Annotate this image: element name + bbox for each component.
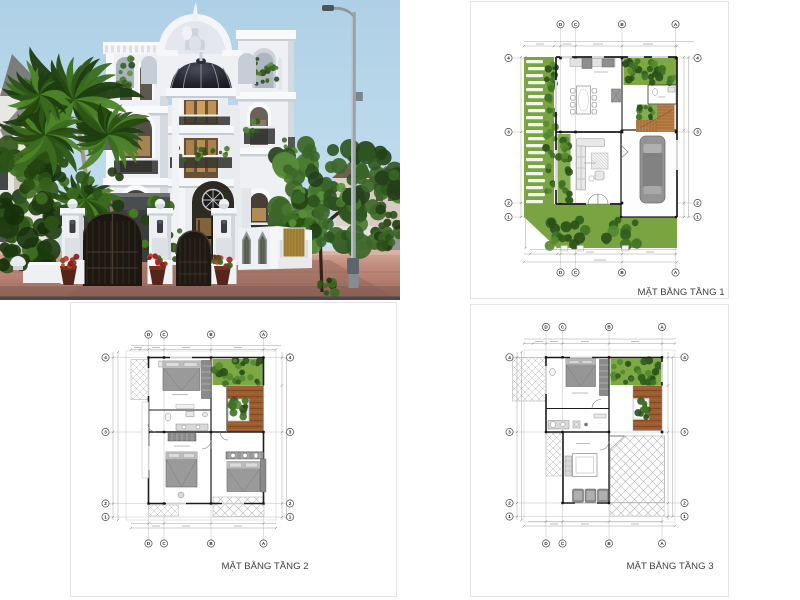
svg-text:4: 4 [696, 56, 699, 61]
svg-text:2: 2 [104, 501, 107, 506]
svg-text:MẶT BẰNG TẦNG 3: MẶT BẰNG TẦNG 3 [626, 561, 713, 572]
svg-text:2: 2 [696, 201, 699, 206]
svg-text:3: 3 [507, 130, 510, 135]
svg-text:MẶT BẰNG TẦNG 1: MẶT BẰNG TẦNG 1 [637, 287, 724, 298]
svg-text:1: 1 [104, 515, 107, 520]
svg-text:2: 2 [507, 201, 510, 206]
svg-text:3: 3 [104, 430, 107, 435]
svg-text:1: 1 [289, 515, 292, 520]
svg-text:4: 4 [508, 355, 511, 360]
svg-text:3: 3 [696, 130, 699, 135]
svg-text:4: 4 [289, 355, 292, 360]
svg-text:1: 1 [696, 215, 699, 220]
svg-text:3: 3 [508, 430, 511, 435]
svg-text:1: 1 [507, 215, 510, 220]
svg-text:3: 3 [683, 430, 686, 435]
svg-text:4: 4 [507, 56, 510, 61]
svg-text:2: 2 [683, 501, 686, 506]
svg-text:2: 2 [289, 501, 292, 506]
svg-text:1: 1 [508, 514, 511, 519]
svg-text:4: 4 [683, 355, 686, 360]
svg-text:2: 2 [508, 501, 511, 506]
svg-text:MẶT BẰNG TẦNG 2: MẶT BẰNG TẦNG 2 [221, 561, 308, 572]
svg-text:4: 4 [104, 355, 107, 360]
svg-text:1: 1 [683, 514, 686, 519]
svg-text:3: 3 [289, 430, 292, 435]
